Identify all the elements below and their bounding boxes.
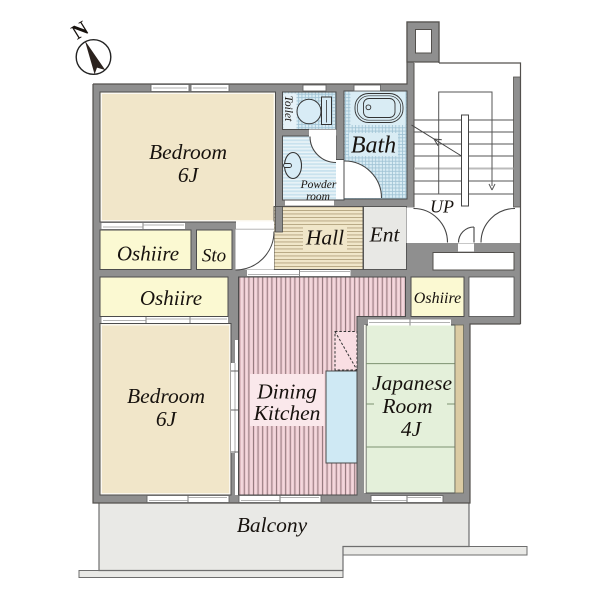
- svg-text:Toilet: Toilet: [282, 96, 294, 123]
- svg-text:Room: Room: [381, 394, 432, 418]
- svg-text:Oshiire: Oshiire: [414, 290, 461, 307]
- svg-text:Balcony: Balcony: [237, 513, 308, 537]
- svg-text:Hall: Hall: [305, 226, 344, 250]
- svg-text:Sto: Sto: [202, 246, 226, 267]
- svg-text:Bedroom: Bedroom: [127, 384, 205, 408]
- svg-text:Ent: Ent: [369, 223, 401, 247]
- svg-text:Kitchen: Kitchen: [253, 401, 321, 425]
- svg-text:UP: UP: [430, 197, 454, 217]
- svg-text:Bath: Bath: [351, 133, 396, 159]
- svg-text:6J: 6J: [156, 407, 178, 431]
- svg-text:6J: 6J: [178, 163, 200, 187]
- svg-text:Powder: Powder: [300, 179, 337, 191]
- svg-text:Bedroom: Bedroom: [149, 140, 227, 164]
- svg-text:Oshiire: Oshiire: [117, 242, 179, 266]
- svg-text:Dining: Dining: [256, 380, 317, 404]
- svg-text:Oshiire: Oshiire: [140, 286, 202, 310]
- svg-text:Japanese: Japanese: [372, 371, 452, 395]
- svg-text:4J: 4J: [401, 417, 423, 441]
